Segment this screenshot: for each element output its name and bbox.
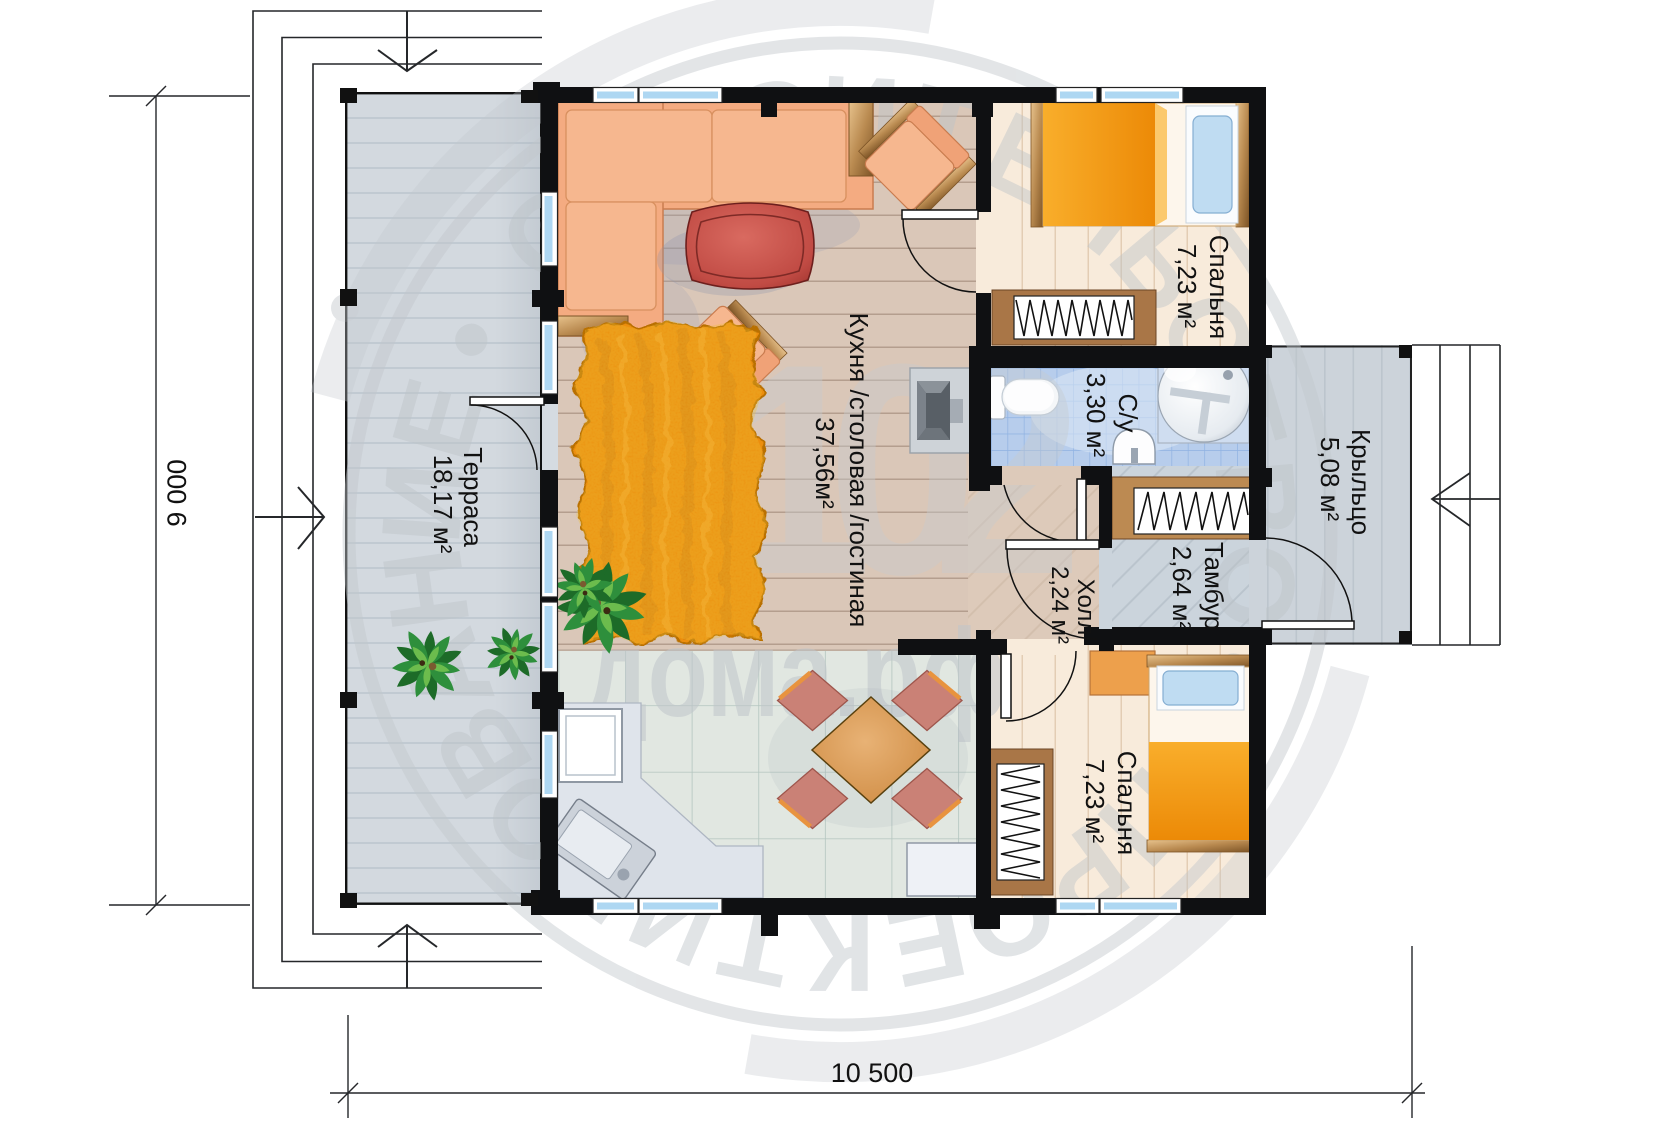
svg-text:9 000: 9 000: [162, 459, 192, 527]
svg-text:7,23 м²: 7,23 м²: [1172, 244, 1202, 329]
svg-text:7,23 м²: 7,23 м²: [1080, 759, 1110, 844]
svg-text:10 500: 10 500: [831, 1058, 914, 1088]
svg-text:Холл: Холл: [1072, 579, 1099, 636]
svg-text:5,08 м²: 5,08 м²: [1315, 437, 1345, 522]
svg-text:Тамбур: Тамбур: [1199, 542, 1229, 630]
svg-text:Кухня /столовая /гостиная: Кухня /столовая /гостиная: [844, 313, 874, 628]
svg-text:3,30 м²: 3,30 м²: [1081, 373, 1111, 458]
svg-text:Терраса: Терраса: [458, 447, 488, 547]
svg-text:2,64 м²: 2,64 м²: [1167, 546, 1197, 631]
svg-text:18,17 м²: 18,17 м²: [428, 455, 458, 554]
svg-text:Спальня: Спальня: [1204, 235, 1234, 339]
svg-text:С/у: С/у: [1113, 394, 1143, 433]
svg-text:Крыльцо: Крыльцо: [1346, 429, 1376, 535]
svg-text:Н: Н: [358, 540, 493, 638]
svg-text:37,56м²: 37,56м²: [810, 417, 840, 509]
svg-text:Спальня: Спальня: [1112, 751, 1142, 855]
svg-text:2,24 м²: 2,24 м²: [1046, 566, 1073, 644]
